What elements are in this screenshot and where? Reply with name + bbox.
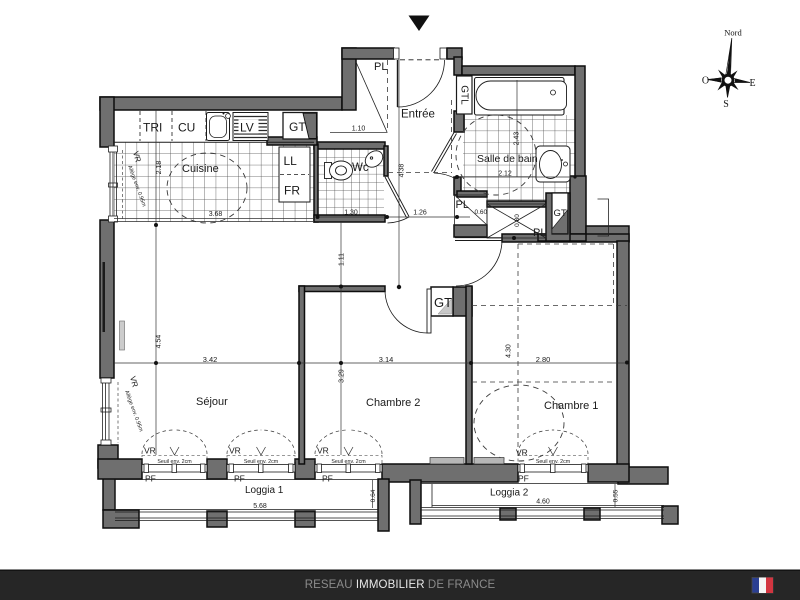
svg-text:Seuil env. 2cm: Seuil env. 2cm — [536, 459, 571, 465]
svg-text:VR: VR — [317, 446, 329, 456]
svg-text:S: S — [723, 99, 729, 110]
svg-text:Wc: Wc — [352, 162, 369, 174]
svg-text:1.26: 1.26 — [413, 210, 427, 217]
svg-text:3.68: 3.68 — [209, 211, 223, 218]
svg-text:1.30: 1.30 — [344, 210, 358, 217]
svg-text:Salle de bain: Salle de bain — [477, 153, 538, 165]
svg-text:LL: LL — [284, 154, 298, 168]
svg-text:0.80: 0.80 — [514, 214, 521, 227]
svg-text:Loggia 1: Loggia 1 — [245, 485, 284, 496]
svg-text:PF: PF — [518, 474, 529, 484]
svg-text:VR: VR — [144, 446, 156, 456]
svg-text:Seuil env. 2cm: Seuil env. 2cm — [331, 459, 366, 465]
svg-text:0.64: 0.64 — [370, 489, 377, 502]
svg-text:PF: PF — [322, 474, 333, 484]
svg-text:2.12: 2.12 — [498, 171, 512, 178]
svg-text:2.43: 2.43 — [514, 132, 521, 146]
svg-text:Loggia 2: Loggia 2 — [490, 488, 529, 499]
svg-text:Séjour: Séjour — [196, 396, 228, 408]
svg-text:PL: PL — [533, 227, 546, 239]
svg-text:GT: GT — [554, 208, 567, 219]
svg-text:3.14: 3.14 — [379, 355, 394, 364]
svg-text:PL: PL — [374, 61, 387, 73]
svg-text:GTL: GTL — [459, 85, 470, 105]
svg-text:1.10: 1.10 — [352, 126, 366, 133]
svg-text:RESEAU IMMOBILIER DE FRANCE: RESEAU IMMOBILIER DE FRANCE — [305, 579, 496, 591]
svg-text:0.60: 0.60 — [475, 209, 488, 216]
svg-text:Nord: Nord — [724, 28, 742, 38]
svg-text:Seuil env. 2cm: Seuil env. 2cm — [244, 459, 279, 465]
svg-text:Chambre 2: Chambre 2 — [366, 397, 420, 409]
svg-text:Seuil env. 2cm: Seuil env. 2cm — [157, 459, 192, 465]
svg-text:VR: VR — [516, 448, 528, 458]
svg-text:PF: PF — [145, 474, 156, 484]
svg-text:VR: VR — [229, 446, 241, 456]
svg-text:Chambre 1: Chambre 1 — [544, 400, 598, 412]
svg-text:4.60: 4.60 — [536, 499, 550, 506]
svg-text:4.30: 4.30 — [506, 344, 513, 358]
svg-text:Entrée: Entrée — [401, 109, 435, 121]
svg-text:4.38: 4.38 — [399, 164, 406, 178]
svg-text:1.11: 1.11 — [339, 253, 346, 266]
svg-text:2.80: 2.80 — [536, 355, 551, 364]
svg-text:GT: GT — [289, 120, 306, 134]
svg-text:2.18: 2.18 — [156, 161, 163, 175]
svg-text:5.68: 5.68 — [253, 503, 267, 510]
svg-text:0.55: 0.55 — [613, 489, 620, 502]
svg-text:PF: PF — [234, 474, 245, 484]
svg-text:FR: FR — [284, 184, 300, 198]
svg-text:4.54: 4.54 — [156, 335, 163, 349]
svg-text:PL: PL — [456, 199, 469, 211]
svg-text:3.29: 3.29 — [339, 369, 346, 383]
svg-text:3.42: 3.42 — [203, 355, 218, 364]
svg-text:CU: CU — [178, 121, 195, 135]
svg-text:O: O — [702, 76, 709, 87]
svg-text:TRI: TRI — [143, 121, 162, 135]
svg-text:GT: GT — [434, 295, 452, 310]
svg-text:LV: LV — [240, 121, 254, 135]
svg-text:E: E — [749, 78, 755, 89]
svg-text:Cuisine: Cuisine — [182, 163, 219, 175]
